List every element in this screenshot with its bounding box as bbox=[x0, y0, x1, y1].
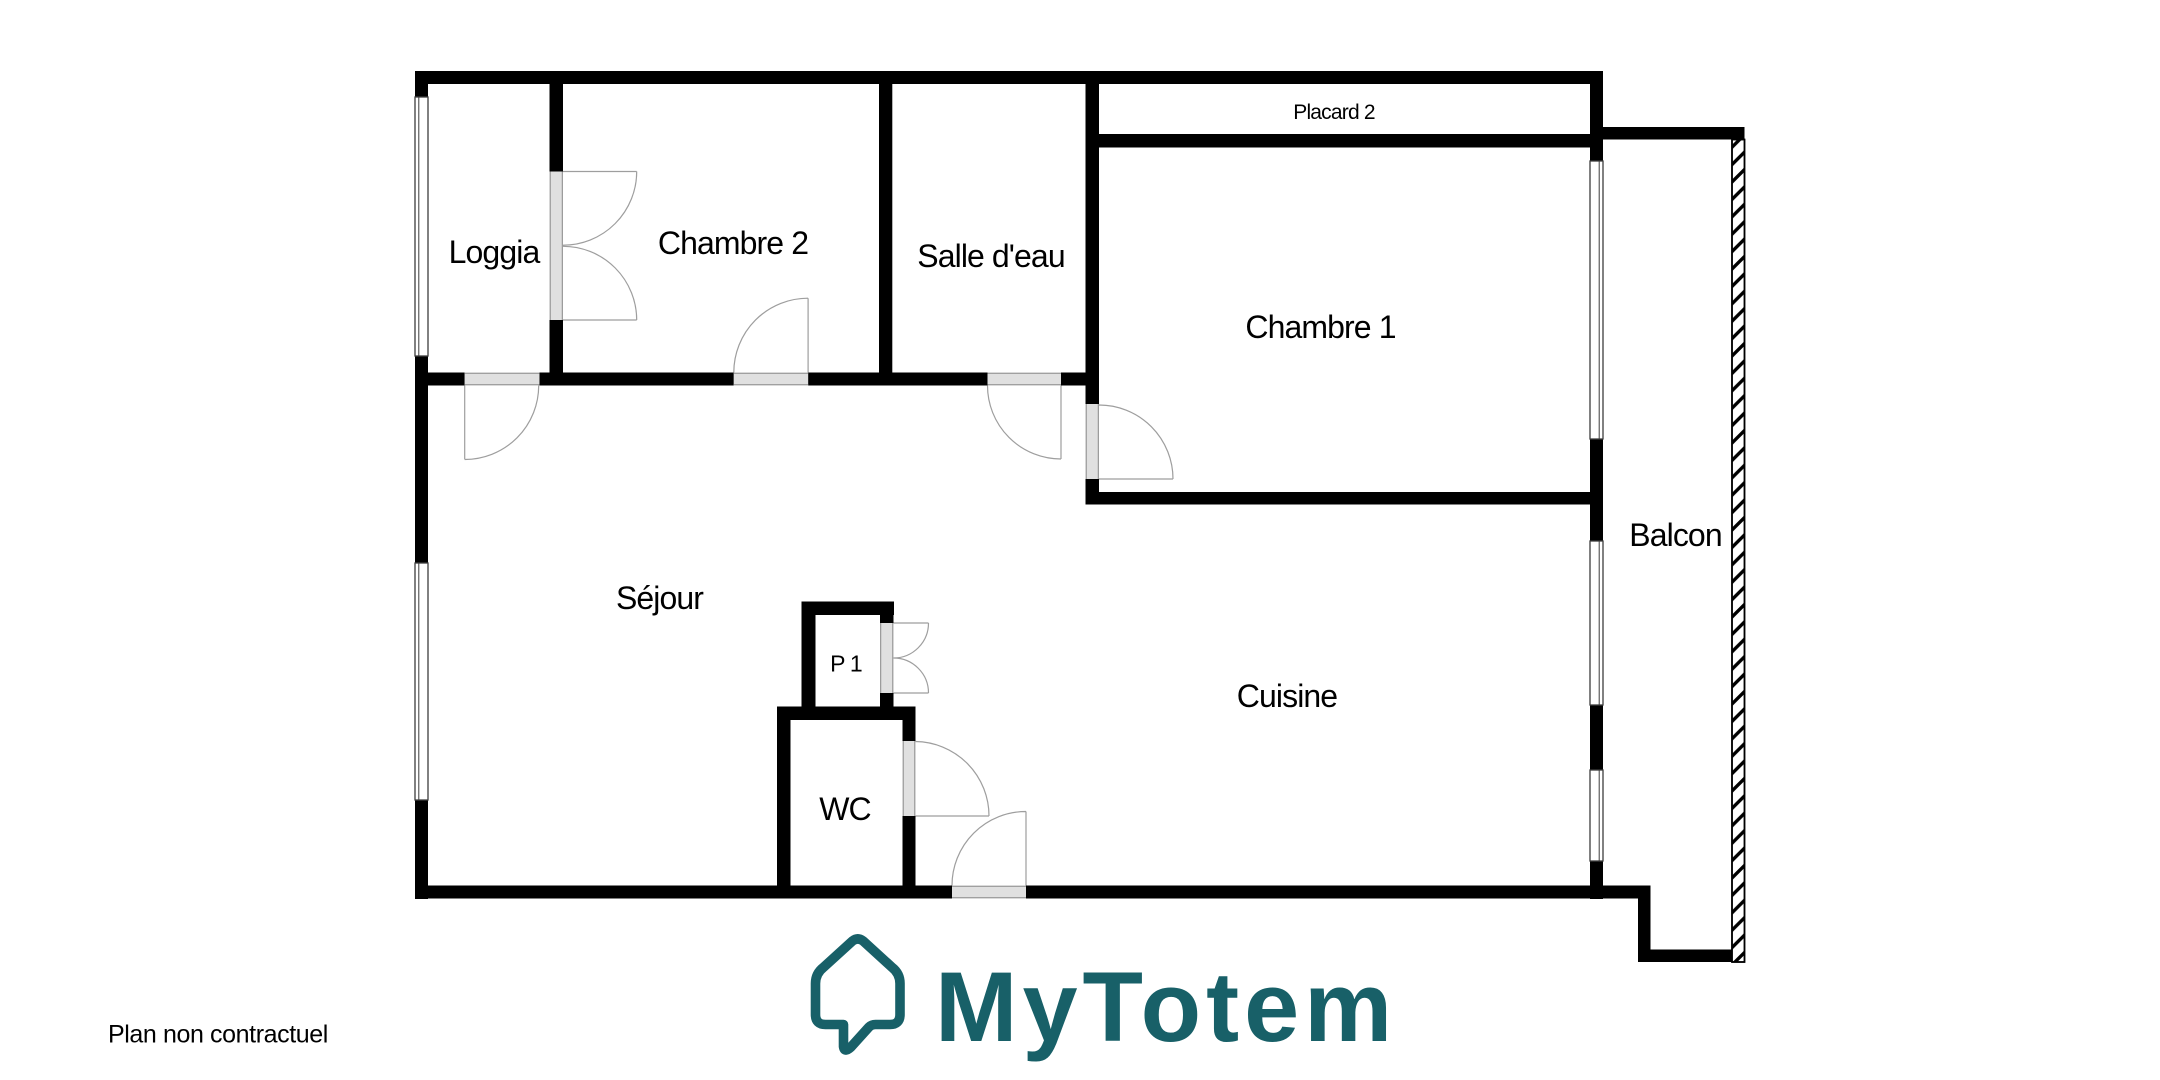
svg-text:Loggia: Loggia bbox=[449, 234, 541, 270]
svg-text:Cuisine: Cuisine bbox=[1237, 678, 1338, 714]
svg-text:Salle d'eau: Salle d'eau bbox=[917, 238, 1064, 274]
svg-text:Chambre 1: Chambre 1 bbox=[1245, 309, 1395, 345]
svg-text:Plan non contractuel: Plan non contractuel bbox=[108, 1021, 328, 1049]
svg-text:Séjour: Séjour bbox=[616, 580, 704, 616]
svg-text:MyTotem: MyTotem bbox=[935, 951, 1397, 1062]
svg-text:Balcon: Balcon bbox=[1629, 517, 1721, 553]
svg-text:P 1: P 1 bbox=[830, 651, 862, 677]
svg-text:WC: WC bbox=[819, 791, 871, 827]
svg-text:Placard 2: Placard 2 bbox=[1293, 101, 1375, 124]
svg-text:Chambre 2: Chambre 2 bbox=[658, 225, 808, 261]
